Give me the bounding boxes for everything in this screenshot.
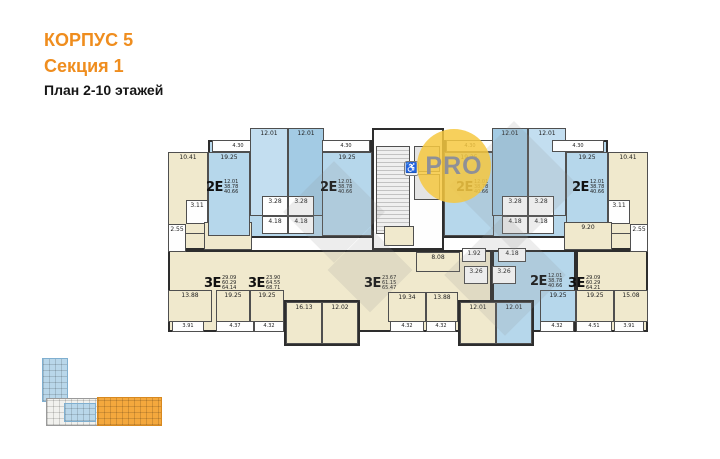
- other-section-wing: [42, 358, 68, 402]
- mini-location-map: [0, 0, 720, 459]
- floor-plan-page: { "header": { "building": "КОРПУС 5", "s…: [0, 0, 720, 459]
- other-section-wing: [64, 403, 96, 422]
- current-section-highlight: [97, 397, 162, 426]
